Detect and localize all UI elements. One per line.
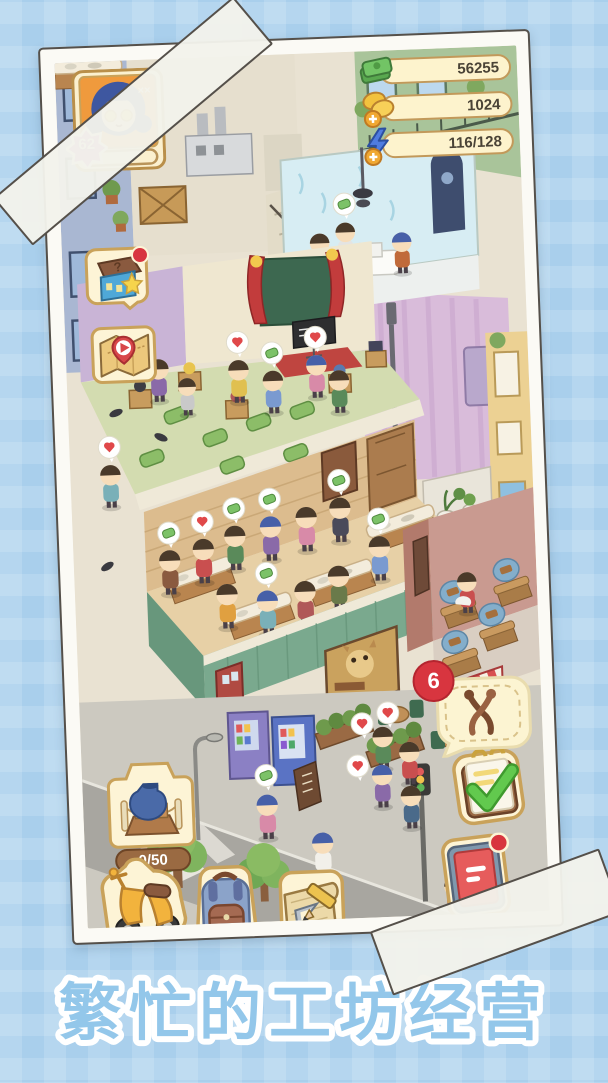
cash-counter[interactable]: 56255 bbox=[361, 54, 512, 86]
energy-counter[interactable]: 116/128 bbox=[363, 128, 514, 160]
tasks-button[interactable] bbox=[445, 745, 532, 828]
coin-value: 1024 bbox=[380, 91, 513, 122]
backpack-button[interactable] bbox=[183, 860, 268, 929]
sandwich-board bbox=[294, 761, 322, 810]
energy-value: 116/128 bbox=[381, 128, 514, 159]
order-bubble[interactable]: 6 bbox=[428, 672, 533, 758]
scooter-button[interactable] bbox=[95, 855, 197, 928]
mystery-box-button[interactable]: ? bbox=[84, 242, 155, 315]
coin-plus-icon bbox=[358, 90, 399, 130]
coin-counter[interactable]: 1024 bbox=[362, 91, 513, 123]
caption-text: 繁忙的工坊经营 bbox=[59, 979, 549, 1048]
currency-list: 56255 1024 116/128 bbox=[361, 54, 515, 171]
energy-plus-icon bbox=[359, 127, 400, 167]
map-button[interactable] bbox=[89, 321, 159, 388]
blueprint-button[interactable] bbox=[270, 862, 355, 928]
game-viewport: ×× 62 56255 1024 116/128 bbox=[55, 45, 550, 928]
cash-icon bbox=[356, 53, 397, 91]
mystery-box-notification-dot bbox=[132, 247, 149, 264]
journal-notification-dot bbox=[489, 833, 508, 852]
cash-value: 56255 bbox=[379, 54, 512, 85]
caption-banner: 繁忙的工坊经营 bbox=[24, 968, 584, 1078]
